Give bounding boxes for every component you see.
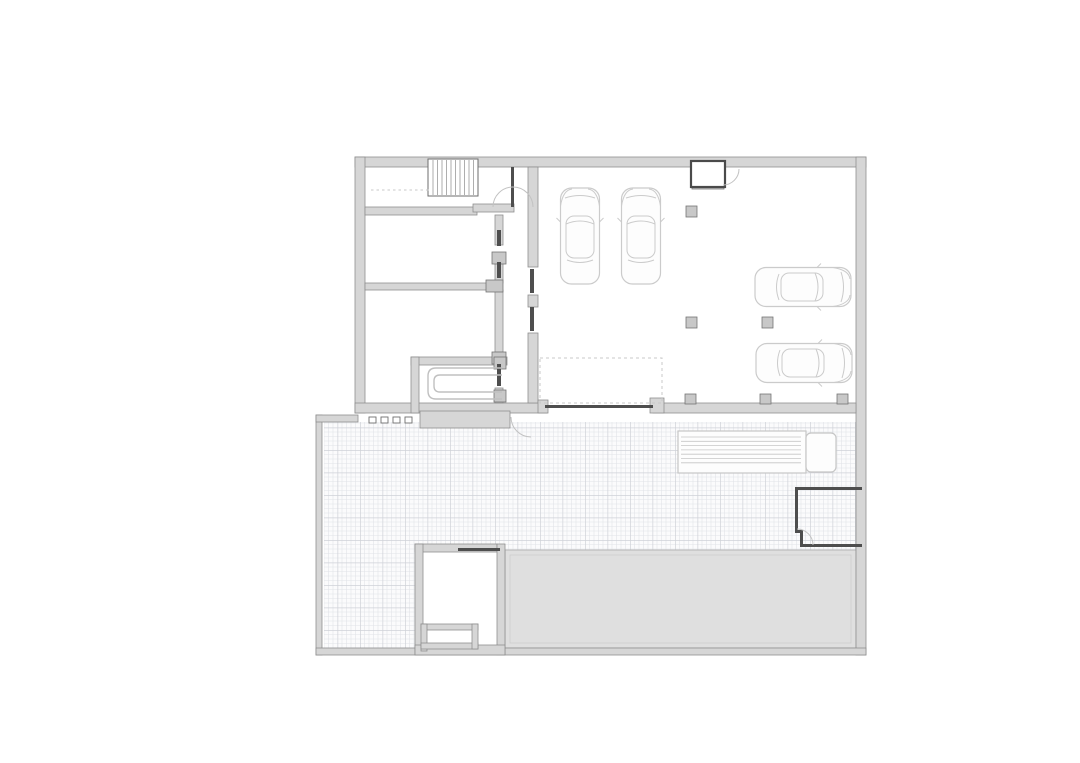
window-tick xyxy=(393,417,400,423)
wall xyxy=(528,295,538,307)
wall xyxy=(653,403,856,413)
column xyxy=(686,317,697,328)
wall xyxy=(495,290,503,352)
door-leaf xyxy=(795,487,862,490)
wall xyxy=(856,157,866,655)
room-floor xyxy=(423,552,497,645)
wall xyxy=(528,333,538,403)
column xyxy=(685,394,696,404)
door-leaf xyxy=(497,262,501,278)
door-leaf xyxy=(800,544,862,547)
elevator-shaft xyxy=(691,161,725,187)
wall xyxy=(411,357,419,413)
column xyxy=(762,317,773,328)
wall xyxy=(365,207,477,215)
window-tick xyxy=(405,417,412,423)
wall xyxy=(316,648,866,655)
wall xyxy=(355,157,365,413)
car-icon xyxy=(557,188,604,284)
door-leaf xyxy=(530,269,534,293)
wall xyxy=(472,624,478,649)
wall xyxy=(420,411,510,428)
wall xyxy=(365,283,488,290)
window-tick xyxy=(381,417,388,423)
column xyxy=(486,280,503,292)
wall xyxy=(316,415,322,655)
stair-enclosure xyxy=(428,159,478,196)
wall xyxy=(421,643,478,649)
truck-icon xyxy=(678,431,836,473)
car-icon xyxy=(755,264,851,311)
lower-stair-rail xyxy=(428,368,502,399)
door-leaf xyxy=(795,487,798,533)
door-leaf xyxy=(545,405,653,408)
lower-stair-rail xyxy=(434,375,502,392)
void-dashed-outline xyxy=(540,358,662,403)
column xyxy=(760,394,771,404)
courtyard-paving xyxy=(324,550,415,648)
wall xyxy=(528,167,538,267)
window-tick xyxy=(369,417,376,423)
car-icon xyxy=(618,188,665,284)
door-leaf xyxy=(530,307,534,331)
page xyxy=(0,0,1080,763)
wall xyxy=(497,544,505,655)
wall xyxy=(421,624,478,630)
column xyxy=(686,206,697,217)
truck-cab xyxy=(806,433,836,472)
wall xyxy=(316,415,358,422)
door-leaf xyxy=(497,230,501,246)
door-leaf xyxy=(458,548,500,551)
column xyxy=(837,394,848,404)
floor-plan-svg xyxy=(0,0,1080,763)
car-icon xyxy=(756,340,852,387)
floor-plan xyxy=(0,0,1080,763)
driveway-area xyxy=(505,550,856,648)
